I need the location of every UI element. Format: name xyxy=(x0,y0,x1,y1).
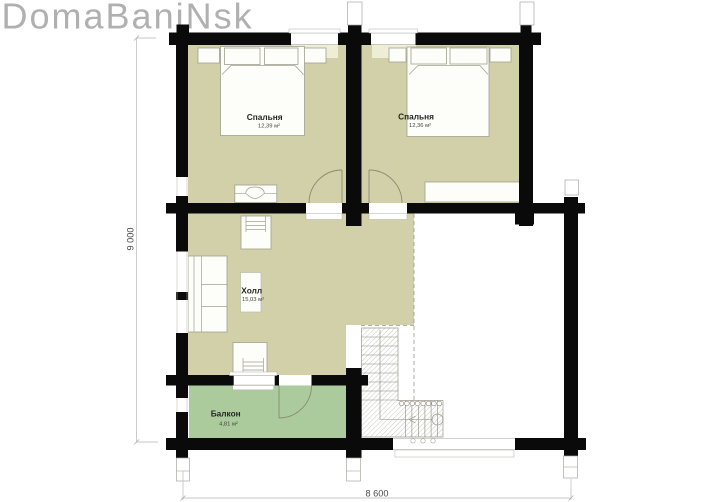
svg-text:8 600: 8 600 xyxy=(366,488,389,498)
svg-text:Спальня: Спальня xyxy=(247,112,283,122)
svg-text:Холл: Холл xyxy=(241,286,262,296)
svg-text:4,81 м²: 4,81 м² xyxy=(219,421,238,427)
svg-text:Балкон: Балкон xyxy=(211,408,241,418)
svg-text:DomaBaniNsk: DomaBaniNsk xyxy=(2,0,254,37)
svg-text:12,36 м²: 12,36 м² xyxy=(409,123,431,129)
svg-text:Спальня: Спальня xyxy=(398,112,434,122)
svg-text:15,03 м²: 15,03 м² xyxy=(242,297,264,303)
svg-text:12,39 м²: 12,39 м² xyxy=(258,124,280,130)
svg-text:9 000: 9 000 xyxy=(126,228,136,251)
